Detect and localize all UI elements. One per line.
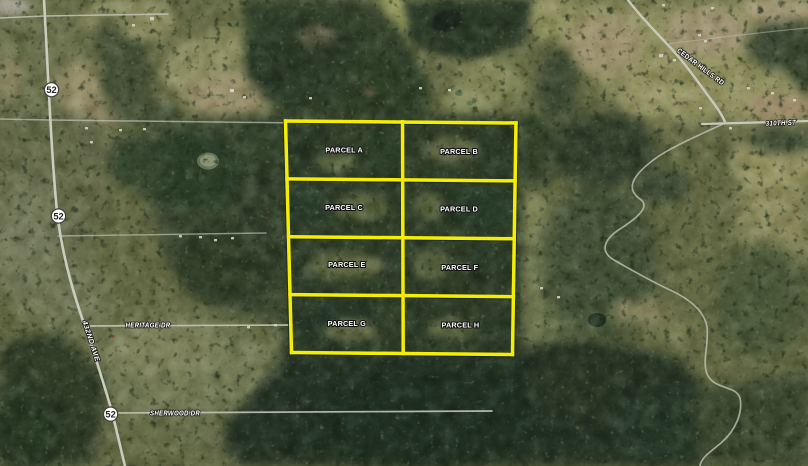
svg-text:HERITAGE DR: HERITAGE DR [126,323,171,330]
svg-text:PARCEL C: PARCEL C [325,203,363,212]
svg-text:PARCEL G: PARCEL G [328,319,366,328]
svg-text:PARCEL E: PARCEL E [328,260,365,269]
svg-text:PARCEL B: PARCEL B [440,147,478,156]
svg-text:PARCEL A: PARCEL A [325,145,363,154]
svg-text:SHERWOOD DR: SHERWOOD DR [150,411,200,418]
svg-text:52: 52 [46,85,56,95]
svg-text:PARCEL H: PARCEL H [441,320,479,329]
svg-text:52: 52 [53,211,63,221]
svg-text:PARCEL D: PARCEL D [440,204,478,213]
svg-text:52: 52 [105,409,115,419]
svg-text:310TH ST: 310TH ST [766,120,797,128]
svg-text:PARCEL F: PARCEL F [441,263,478,272]
